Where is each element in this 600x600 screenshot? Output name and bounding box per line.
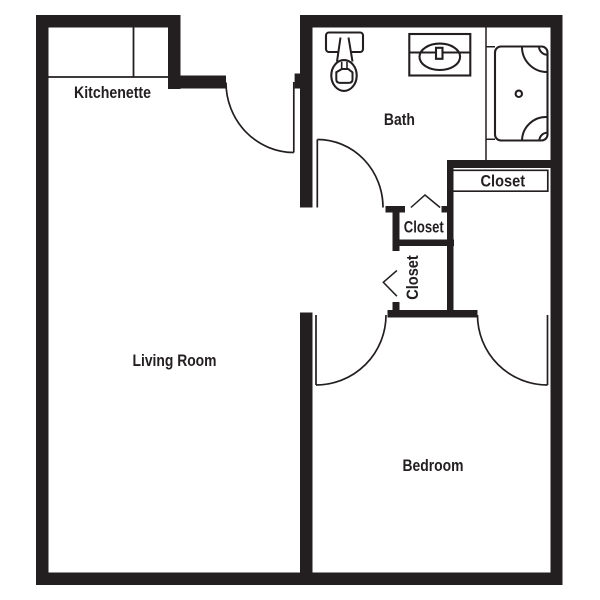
- svg-text:Living Room: Living Room: [133, 351, 217, 370]
- svg-text:Bath: Bath: [384, 110, 415, 129]
- svg-text:Bedroom: Bedroom: [403, 456, 464, 475]
- svg-text:Closet: Closet: [481, 171, 526, 190]
- svg-text:Closet: Closet: [404, 218, 444, 237]
- svg-text:Closet: Closet: [403, 255, 422, 300]
- svg-text:Kitchenette: Kitchenette: [74, 83, 151, 102]
